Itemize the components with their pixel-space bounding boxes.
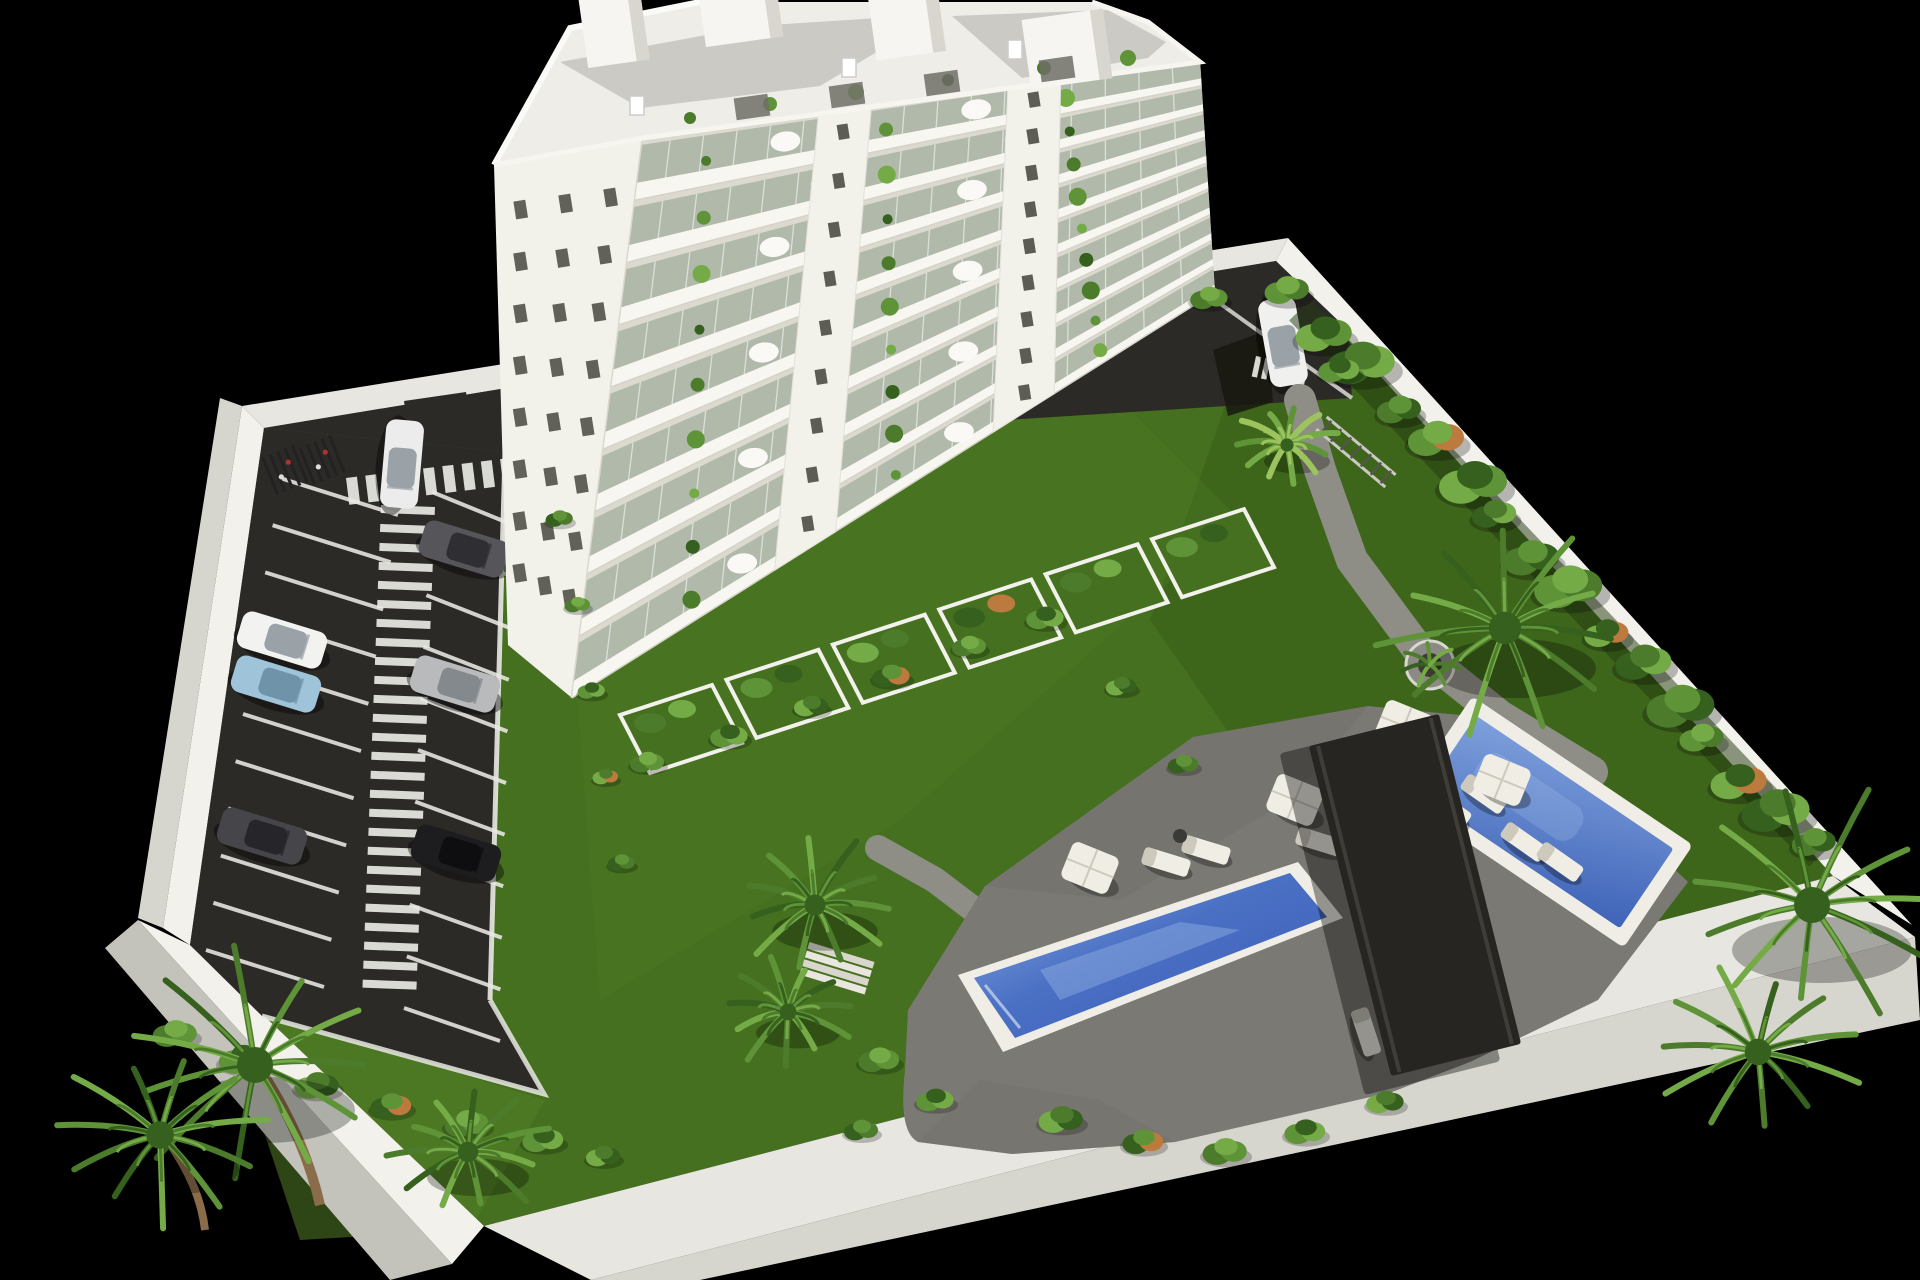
palm-crown — [146, 1121, 174, 1149]
terrace-hedge — [881, 630, 909, 648]
bush-leaf — [1389, 396, 1412, 414]
shrub-leaf — [720, 725, 740, 740]
pier-window — [1025, 165, 1038, 182]
shrub-leaf — [1133, 1129, 1155, 1145]
palm-crown — [804, 894, 825, 915]
bush-leaf — [1630, 645, 1660, 668]
balcony-plant — [697, 211, 711, 225]
pier-window — [806, 466, 819, 483]
palm-crown — [1794, 887, 1830, 923]
balustrade-post — [1173, 94, 1174, 111]
architectural-rendering: Aerial 3D architectural rendering of a w… — [0, 0, 1920, 1280]
roof-bulkhead — [868, 0, 946, 61]
balcony-plant — [693, 265, 711, 283]
pier-window — [1020, 311, 1033, 328]
terrace-hedge — [1166, 537, 1198, 557]
pier-window — [801, 515, 814, 532]
side-table — [1173, 829, 1187, 843]
pier-window — [819, 319, 832, 336]
shrub-leaf — [1036, 607, 1056, 622]
balcony-plant — [881, 298, 899, 316]
terrace-hedge — [1200, 524, 1228, 542]
balcony-plant — [1082, 282, 1100, 300]
balustrade-post — [1176, 150, 1177, 167]
pier-window — [810, 417, 823, 434]
penthouse-window — [734, 94, 771, 121]
shrub-leaf — [1295, 1119, 1317, 1135]
palm-crown — [237, 1047, 273, 1083]
balcony-plant — [694, 325, 704, 335]
shrub-leaf — [1176, 755, 1192, 767]
balcony-plant — [689, 488, 699, 498]
shrub-leaf — [1114, 677, 1130, 689]
bush-leaf — [1664, 685, 1700, 713]
shrub-leaf — [571, 597, 585, 607]
pier-window — [1022, 274, 1035, 291]
pier-window — [1027, 91, 1040, 108]
shrub-leaf — [1214, 1138, 1237, 1155]
balcony-plant — [882, 256, 896, 270]
terrace-hedge — [740, 678, 772, 698]
balcony-plant — [691, 378, 705, 392]
bush-leaf — [1423, 421, 1453, 444]
terrace-hedge — [1060, 572, 1092, 592]
balustrade-post — [1178, 205, 1179, 222]
balcony-plant — [1077, 224, 1087, 234]
pier-window — [823, 270, 836, 287]
balcony-plant — [886, 345, 896, 355]
shrub-leaf — [1200, 287, 1220, 302]
balcony-plant — [1093, 343, 1107, 357]
bush-leaf — [1311, 316, 1341, 339]
aerial-view-canvas — [0, 0, 1920, 1280]
shrub-leaf — [381, 1093, 403, 1109]
terrace-hedge — [774, 665, 802, 683]
shrub-leaf — [1329, 357, 1351, 373]
balcony-plant — [891, 470, 901, 480]
pier-window — [1026, 128, 1039, 145]
palm-crown — [1745, 1039, 1771, 1065]
roof-vent — [842, 58, 856, 77]
pier-window — [1019, 348, 1032, 365]
shrub-leaf — [595, 1146, 613, 1159]
balcony-plant — [687, 430, 705, 448]
balcony-plant — [1067, 157, 1081, 171]
balcony-plant — [883, 214, 893, 224]
pier-window — [837, 123, 850, 140]
shrub-leaf — [599, 769, 613, 779]
shrub-leaf — [639, 752, 657, 765]
balcony-plant — [1079, 253, 1093, 267]
pier-window — [1024, 201, 1037, 218]
shrub-leaf — [553, 510, 567, 521]
shrub-leaf — [961, 636, 979, 649]
pier-window — [828, 221, 841, 238]
terrace-hedge — [987, 594, 1015, 612]
balustrade-post — [1179, 232, 1180, 249]
palm-crown — [1280, 438, 1293, 451]
bush-leaf — [1691, 724, 1714, 742]
shrub-leaf — [1376, 1091, 1396, 1106]
bush-leaf — [1276, 276, 1299, 294]
balcony-plant — [701, 156, 711, 166]
balcony-plant — [879, 122, 893, 136]
bush-leaf — [1803, 828, 1826, 846]
terrace-hedge — [847, 643, 879, 663]
pier-window — [1018, 384, 1031, 401]
bush-leaf — [1457, 461, 1493, 489]
penthouse-plant — [684, 112, 696, 124]
shrub-leaf — [926, 1089, 946, 1104]
palm-shadow — [1732, 917, 1912, 983]
terrace-hedge — [1094, 559, 1122, 577]
terrace-hedge — [668, 700, 696, 718]
roof-bulkhead — [578, 0, 649, 68]
balcony-plant — [682, 591, 700, 609]
balustrade-post — [1181, 260, 1182, 277]
roof-vent — [1008, 40, 1022, 59]
balcony-plant — [886, 385, 900, 399]
pier-window — [814, 368, 827, 385]
terrace-hedge — [634, 713, 666, 733]
palm-frond — [1427, 643, 1430, 665]
palm-crown — [780, 1004, 797, 1021]
penthouse-window — [924, 70, 961, 97]
balustrade-post — [1172, 67, 1173, 84]
balcony-plant — [1090, 316, 1100, 326]
shrub-leaf — [164, 1020, 187, 1037]
shrub-leaf — [882, 665, 902, 680]
roof-vent — [630, 96, 644, 115]
shrub-leaf — [853, 1120, 871, 1133]
balcony-plant — [878, 166, 896, 184]
penthouse-plant — [1120, 50, 1136, 66]
shrub-leaf — [803, 696, 821, 709]
shrub-leaf — [585, 682, 599, 693]
balcony-plant — [1069, 188, 1087, 206]
palm-crown — [458, 1142, 478, 1162]
balcony-plant — [885, 425, 903, 443]
pier-window — [832, 172, 845, 189]
shrub-leaf — [615, 854, 629, 865]
bush-leaf — [1518, 540, 1548, 563]
balustrade-post — [1182, 288, 1183, 305]
balustrade-post — [1177, 177, 1178, 194]
car-cabin — [386, 447, 417, 489]
penthouse-window — [829, 82, 866, 109]
balcony-plant — [686, 540, 700, 554]
shrub-leaf — [1050, 1106, 1073, 1123]
bush-leaf — [1484, 500, 1507, 518]
shrub-leaf — [869, 1047, 891, 1063]
balustrade-post — [1175, 122, 1176, 139]
palm-crown — [1489, 612, 1521, 644]
bush-leaf — [1552, 565, 1588, 593]
penthouse-window — [1039, 56, 1076, 83]
bush-leaf — [1725, 764, 1755, 787]
terrace-hedge — [953, 607, 985, 627]
balcony-plant — [1065, 126, 1075, 136]
pier-window — [1023, 238, 1036, 255]
